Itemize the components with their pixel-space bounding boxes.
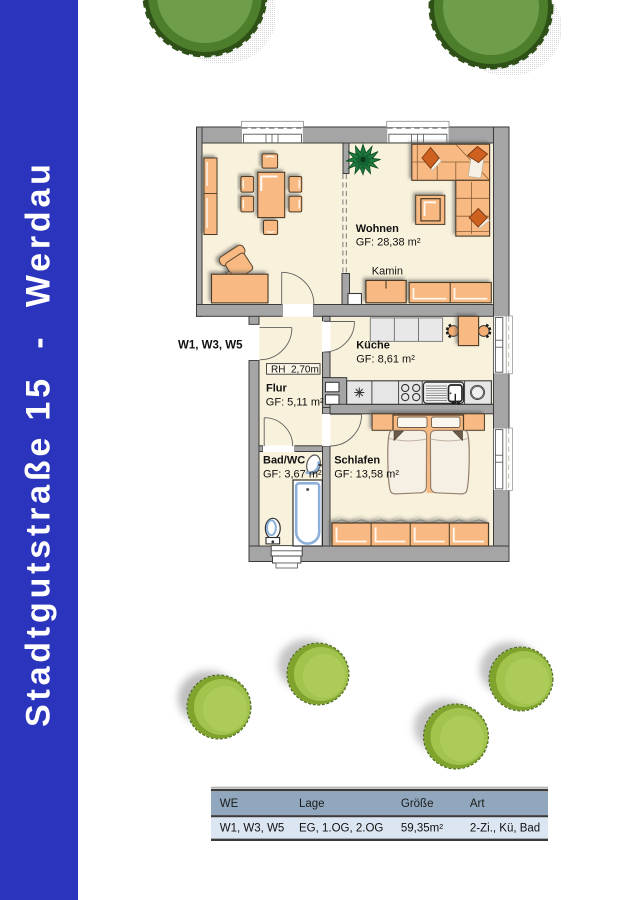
svg-text:EG, 1.OG, 2.OG: EG, 1.OG, 2.OG [299,823,383,835]
svg-text:2-Zi., Kü, Bad: 2-Zi., Kü, Bad [470,823,540,835]
svg-text:GF: 28,38 m²: GF: 28,38 m² [356,236,421,248]
svg-text:Küche: Küche [356,339,390,351]
svg-text:Schlafen: Schlafen [334,454,380,466]
svg-text:W1, W3, W5: W1, W3, W5 [178,340,243,352]
svg-text:Lage: Lage [299,798,325,810]
svg-text:W1, W3, W5: W1, W3, W5 [220,823,285,835]
svg-text:RH 2,70m: RH 2,70m [271,364,319,375]
svg-text:Größe: Größe [401,798,434,810]
svg-text:Kamin: Kamin [372,266,403,278]
svg-text:Art: Art [470,798,486,810]
svg-text:WE: WE [220,798,239,810]
svg-text:59,35m²: 59,35m² [401,823,443,835]
svg-text:GF: 8,61 m²: GF: 8,61 m² [356,353,415,365]
svg-text:Bad/WC: Bad/WC [263,454,305,466]
svg-text:GF: 5,11 m²: GF: 5,11 m² [266,397,324,409]
svg-text:Flur: Flur [266,383,287,395]
svg-text:GF: 3,67 m²: GF: 3,67 m² [263,468,322,480]
svg-text:GF: 13,58 m²: GF: 13,58 m² [334,468,399,480]
svg-text:Wohnen: Wohnen [356,223,399,235]
svg-text:Stadtgutstraße 15 - Werdau: Stadtgutstraße 15 - Werdau [20,160,58,727]
